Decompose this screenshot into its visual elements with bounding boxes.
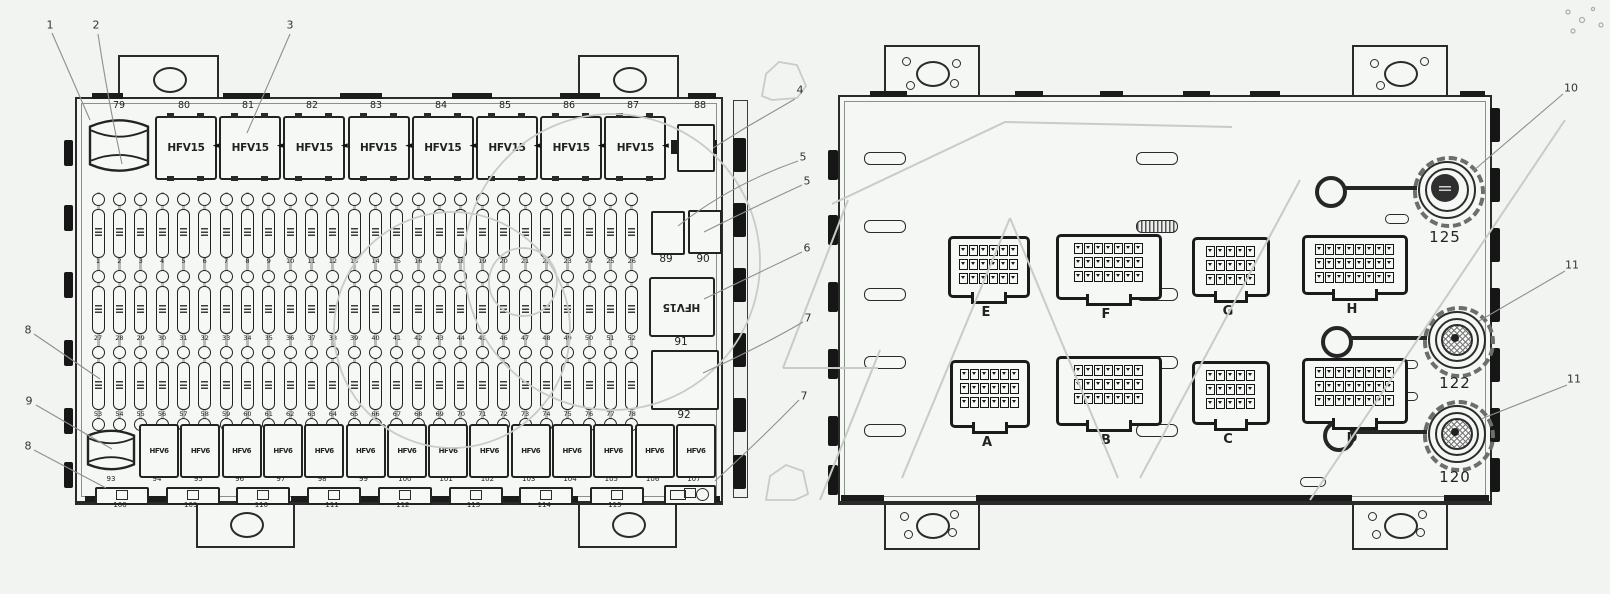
fuse-57 — [177, 362, 190, 410]
pin — [1000, 397, 1009, 408]
bracket-left-bottom-2 — [578, 499, 677, 548]
fuse-terminal — [433, 193, 446, 206]
pin — [1345, 395, 1354, 406]
fuse-position-number: 24 — [585, 257, 593, 265]
relay-hfv6-104: HFV6 — [552, 424, 592, 478]
panel-edge-dash — [870, 91, 907, 97]
fuse-37 — [305, 286, 318, 334]
pin — [1385, 272, 1394, 283]
bracket-right-bottom-2 — [1352, 500, 1448, 550]
pin — [1315, 272, 1324, 283]
pin — [1246, 370, 1255, 381]
mounting-hole — [612, 512, 646, 538]
relay-number: 94 — [153, 475, 162, 483]
pin — [1236, 274, 1245, 285]
bracket-left-bottom-1 — [196, 499, 295, 548]
fuse-terminal — [476, 193, 489, 206]
pin — [959, 273, 968, 284]
relay-tab — [488, 113, 495, 118]
fuse-terminal — [348, 270, 361, 283]
pin — [1124, 271, 1133, 282]
arrow-icon: ◄ — [598, 141, 605, 151]
fuse-terminal — [284, 270, 297, 283]
fuse-78 — [625, 362, 638, 410]
panel-edge-dash — [1460, 91, 1485, 97]
pin — [1084, 379, 1093, 390]
pin — [1375, 258, 1384, 269]
pin — [979, 259, 988, 270]
small-hole — [1372, 530, 1381, 539]
fuse-33 — [220, 286, 233, 334]
relay-position-number: 81 — [242, 100, 254, 111]
callout-3-2: 3 — [287, 19, 294, 32]
fuse-16 — [412, 209, 425, 258]
fuse-terminal — [625, 193, 638, 206]
slot-number: 113 — [467, 501, 480, 509]
pin — [1000, 369, 1009, 380]
fuse-terminal — [156, 270, 169, 283]
pin — [1124, 393, 1133, 404]
pin — [1375, 381, 1384, 392]
pin — [1325, 395, 1334, 406]
pin — [1206, 274, 1215, 285]
pin — [1375, 367, 1384, 378]
fuse-position-number: 25 — [606, 257, 614, 265]
fuse-position-number: 21 — [521, 257, 529, 265]
fuse-terminal — [198, 270, 211, 283]
fuse-position-number: 14 — [371, 257, 379, 265]
pin — [1355, 244, 1364, 255]
fuse-position-number: 1 — [96, 257, 100, 265]
relay-position-number: 83 — [370, 100, 382, 111]
relay-position-number: 86 — [563, 100, 575, 111]
fuse-terminal — [198, 193, 211, 206]
fuse-1 — [92, 209, 105, 258]
slot-pill — [864, 356, 906, 369]
fuse-terminal — [561, 270, 574, 283]
pin — [1206, 260, 1215, 271]
fuse-32 — [198, 286, 211, 334]
pin — [1335, 272, 1344, 283]
left-panel-right-tab — [733, 138, 746, 172]
fuse-terminal — [604, 193, 617, 206]
fuse-terminal — [92, 346, 105, 359]
pin — [1236, 398, 1245, 409]
pin — [999, 273, 1008, 284]
left-panel-right-tab — [733, 203, 746, 237]
fuse-position-number: 23 — [564, 257, 572, 265]
panel-edge-dash — [92, 93, 123, 99]
fuse-terminal — [220, 346, 233, 359]
connector-label-D: D — [1347, 431, 1358, 446]
round-connector-core-125 — [1431, 174, 1459, 202]
fuse-63 — [305, 362, 318, 410]
pin — [1226, 398, 1235, 409]
connector-label-B: B — [1101, 433, 1111, 448]
connector-pins-H — [1315, 244, 1392, 283]
pin — [1074, 379, 1083, 390]
fuse-position-number: 71 — [478, 410, 486, 418]
relay-position-number: 82 — [306, 100, 318, 111]
fuse-position-number: 12 — [329, 257, 337, 265]
fuse-62 — [284, 362, 297, 410]
left-panel-left-tab — [64, 140, 73, 166]
pin — [1206, 384, 1215, 395]
fuse-terminal — [583, 270, 596, 283]
fuse-terminal — [113, 270, 126, 283]
pin — [960, 383, 969, 394]
electrical-box-diagram: 79808182838485868788HFV15HFV15HFV15HFV15… — [0, 0, 1610, 594]
right-panel-right-tab — [1490, 108, 1500, 142]
relay-number: 96 — [235, 475, 244, 483]
fuse-terminal — [305, 346, 318, 359]
pin — [1074, 257, 1083, 268]
relay-tab — [424, 113, 431, 118]
fuse-28 — [113, 286, 126, 334]
pin — [1084, 365, 1093, 376]
fuse-position-number: 4 — [160, 257, 164, 265]
relay-hfv15-83: HFV15 — [348, 116, 410, 180]
relay-hfv15-85: HFV15 — [476, 116, 538, 180]
fuse-position-number: 48 — [542, 334, 550, 342]
pin — [980, 369, 989, 380]
connector-pins-F — [1074, 243, 1141, 282]
fuse-71 — [476, 362, 489, 410]
flasher-relay-79 — [88, 114, 150, 177]
relay-position-number: 87 — [627, 100, 639, 111]
connector-notch — [971, 292, 1007, 304]
callout-6-6: 6 — [804, 242, 811, 255]
hfv6-label: HFV6 — [273, 447, 292, 455]
fuse-position-number: 56 — [158, 410, 166, 418]
fuse-terminal — [604, 346, 617, 359]
pin — [970, 383, 979, 394]
fuse-position-number: 27 — [94, 334, 102, 342]
pin — [1315, 367, 1324, 378]
fuse-65 — [348, 362, 361, 410]
pin — [990, 369, 999, 380]
fuse-terminal — [156, 346, 169, 359]
pin — [1226, 274, 1235, 285]
fuse-terminal — [433, 270, 446, 283]
pin — [1236, 246, 1245, 257]
connector-pins-C — [1206, 370, 1253, 409]
pin — [1216, 274, 1225, 285]
right-panel-left-tab — [828, 150, 838, 180]
relay-hfv6-106: HFV6 — [635, 424, 675, 478]
fuse-23 — [561, 209, 574, 258]
fuse-terminal — [540, 193, 553, 206]
fuse-terminal — [262, 193, 275, 206]
fuse-7 — [220, 209, 233, 258]
fuse-position-number: 40 — [371, 334, 379, 342]
pin — [1375, 395, 1384, 406]
pin — [1315, 258, 1324, 269]
right-panel-left-tab — [828, 282, 838, 312]
fuse-position-number: 8 — [245, 257, 249, 265]
fuse-position-number: 20 — [500, 257, 508, 265]
pin — [960, 397, 969, 408]
pin — [1345, 258, 1354, 269]
test-lead-rod — [1347, 430, 1427, 434]
fuse-terminal — [476, 270, 489, 283]
fuse-position-number: 65 — [350, 410, 358, 418]
left-panel-right-tab — [733, 268, 746, 302]
hfv6-label: HFV6 — [232, 447, 251, 455]
relay-tab — [167, 113, 174, 118]
fuse-position-number: 19 — [478, 257, 486, 265]
left-panel-left-tab — [64, 408, 73, 434]
hfv6-label: HFV6 — [521, 447, 540, 455]
fuse-42 — [412, 286, 425, 334]
fuse-73 — [519, 362, 532, 410]
callout-leader-line — [713, 99, 795, 148]
fuse-22 — [540, 209, 553, 258]
relay-number: 107 — [687, 475, 700, 483]
fuse-19 — [476, 209, 489, 258]
relay-hfv6-102: HFV6 — [469, 424, 509, 478]
fuse-holder-89 — [651, 211, 685, 255]
hfv6-label: HFV6 — [150, 447, 169, 455]
mounting-hole — [613, 67, 647, 93]
pin — [1236, 370, 1245, 381]
relay-hfv15-82: HFV15 — [283, 116, 345, 180]
fuse-terminal — [390, 193, 403, 206]
hfv6-label: HFV6 — [645, 447, 664, 455]
test-lead-rod — [1345, 336, 1427, 340]
slot-pill-small — [1300, 477, 1326, 487]
panel-edge-dash — [688, 93, 716, 99]
fuse-position-number: 66 — [371, 410, 379, 418]
pin — [1000, 383, 1009, 394]
relay-hfv6-99: HFV6 — [346, 424, 386, 478]
slot-number: 110 — [255, 501, 268, 509]
fuse-terminal — [625, 346, 638, 359]
fuse-position-number: 49 — [564, 334, 572, 342]
fuse-position-number: 63 — [307, 410, 315, 418]
pin — [1074, 393, 1083, 404]
connector-pins-B — [1074, 365, 1141, 404]
fuse-77 — [604, 362, 617, 410]
pin — [1335, 367, 1344, 378]
pin — [980, 397, 989, 408]
pin — [1355, 381, 1364, 392]
small-hole — [1420, 57, 1429, 66]
connector-notch — [1086, 420, 1132, 432]
hfv6-label: HFV6 — [439, 447, 458, 455]
fuse-55 — [134, 362, 147, 410]
connector-notch — [1086, 294, 1132, 306]
pin — [1345, 244, 1354, 255]
pin — [1385, 381, 1394, 392]
pin — [1104, 365, 1113, 376]
relay-tab — [325, 113, 332, 118]
pin — [1365, 395, 1374, 406]
fuse-position-number: 45 — [478, 334, 486, 342]
callout-11-13: 11 — [1565, 259, 1579, 272]
fuse-terminal — [326, 346, 339, 359]
fuse-terminal — [390, 346, 403, 359]
round-connector-label-120: 120 — [1439, 468, 1471, 486]
fuse-position-number: 54 — [115, 410, 123, 418]
fuse-64 — [326, 362, 339, 410]
fuse-56 — [156, 362, 169, 410]
pin — [1236, 260, 1245, 271]
fuse-53 — [92, 362, 105, 410]
pin — [1216, 370, 1225, 381]
fuse-position-number: 53 — [94, 410, 102, 418]
pin — [1325, 272, 1334, 283]
bracket-right-bottom-1 — [884, 500, 980, 550]
fuse-position-number: 64 — [329, 410, 337, 418]
relay-hfv15-84: HFV15 — [412, 116, 474, 180]
callout-4-3: 4 — [797, 84, 804, 97]
fuse-34 — [241, 286, 254, 334]
relay-number: 101 — [439, 475, 452, 483]
pin — [1206, 370, 1215, 381]
fuse-terminal — [326, 193, 339, 206]
fuse-11 — [305, 209, 318, 258]
fuse-terminal — [348, 346, 361, 359]
fuse-terminal — [433, 346, 446, 359]
hfv6-label: HFV6 — [480, 447, 499, 455]
pin — [1074, 365, 1083, 376]
pin — [1009, 245, 1018, 256]
fuse-45 — [476, 286, 489, 334]
fuse-2 — [113, 209, 126, 258]
fuse-67 — [390, 362, 403, 410]
fuse-terminal — [412, 193, 425, 206]
relay-hfv6-98: HFV6 — [304, 424, 344, 478]
hfv6-label: HFV6 — [356, 447, 375, 455]
fuse-terminal — [454, 346, 467, 359]
fuse-position-number: 26 — [628, 257, 636, 265]
test-lead-rod — [1339, 186, 1417, 190]
fuse-3 — [134, 209, 147, 258]
fuse-terminal — [390, 270, 403, 283]
fuse-50 — [583, 286, 596, 334]
fuse-position-number: 31 — [179, 334, 187, 342]
right-panel-left-tab — [828, 215, 838, 245]
small-hole — [1370, 59, 1379, 68]
pin — [1365, 381, 1374, 392]
fuse-holder-90 — [688, 210, 722, 254]
pin — [1375, 272, 1384, 283]
relay-number: 97 — [276, 475, 285, 483]
panel-edge-dash — [841, 495, 884, 501]
relay-hfv15-86: HFV15 — [540, 116, 602, 180]
connector-pins-G — [1206, 246, 1253, 285]
fuse-position-number: 41 — [393, 334, 401, 342]
blank-box-92 — [651, 350, 719, 410]
pin — [1094, 393, 1103, 404]
pin — [1335, 244, 1344, 255]
right-panel-right-tab — [1490, 458, 1500, 492]
fuse-60 — [241, 362, 254, 410]
callout-2-1: 2 — [93, 19, 100, 32]
relay-tab — [552, 113, 559, 118]
relay-number: 103 — [522, 475, 535, 483]
panel-edge-dash — [1250, 91, 1280, 97]
pin — [1365, 244, 1374, 255]
fuse-terminal — [519, 270, 532, 283]
pin — [1074, 271, 1083, 282]
pin — [990, 397, 999, 408]
fuse-terminal — [241, 346, 254, 359]
panel-edge-dash — [976, 495, 1352, 501]
pin — [1094, 243, 1103, 254]
pin — [1084, 271, 1093, 282]
fuse-29 — [134, 286, 147, 334]
arrow-icon: ◄ — [469, 141, 476, 151]
hfv6-label: HFV6 — [315, 447, 334, 455]
pin — [1216, 384, 1225, 395]
fuse-27 — [92, 286, 105, 334]
relay-88 — [677, 124, 715, 172]
right-panel-right-tab — [1490, 288, 1500, 322]
pin — [1010, 383, 1019, 394]
mounting-hole — [1384, 61, 1418, 87]
fuse-terminal — [583, 346, 596, 359]
pin — [1355, 367, 1364, 378]
pin — [1226, 370, 1235, 381]
relay-tab — [646, 113, 653, 118]
fuse-21 — [519, 209, 532, 258]
fuse-terminal — [625, 270, 638, 283]
relay-tab — [261, 113, 268, 118]
label-89: 89 — [659, 253, 672, 265]
pin — [1315, 244, 1324, 255]
fuse-terminal — [369, 193, 382, 206]
fuse-54 — [113, 362, 126, 410]
fuse-position-number: 50 — [585, 334, 593, 342]
relay-hfv6-103: HFV6 — [511, 424, 551, 478]
arrow-icon: ◄ — [341, 141, 348, 151]
element-inner-rect — [670, 490, 686, 500]
callout-7-7: 7 — [805, 312, 812, 325]
pin — [1355, 258, 1364, 269]
pin — [1134, 243, 1143, 254]
element-circle — [696, 488, 709, 501]
slot-pill — [864, 288, 906, 301]
pin — [1246, 274, 1255, 285]
slot-number: 111 — [325, 501, 338, 509]
fuse-terminal — [540, 346, 553, 359]
pin — [1114, 393, 1123, 404]
fuse-9 — [262, 209, 275, 258]
arrow-icon: ◄ — [213, 141, 220, 151]
connector-label-A: A — [982, 435, 992, 450]
relay-hfv15-91: HFV15 — [649, 277, 715, 337]
fuse-position-number: 29 — [137, 334, 145, 342]
left-panel-left-tab — [64, 205, 73, 231]
fuse-terminal — [156, 193, 169, 206]
pin — [1104, 243, 1113, 254]
relay-number: 100 — [398, 475, 411, 483]
pin — [1335, 258, 1344, 269]
relay-number: 98 — [318, 475, 327, 483]
fuse-position-number: 72 — [500, 410, 508, 418]
right-panel-left-tab — [828, 349, 838, 379]
fuse-terminal — [262, 346, 275, 359]
fuse-position-number: 3 — [139, 257, 143, 265]
pin — [1345, 367, 1354, 378]
fuse-position-number: 7 — [224, 257, 228, 265]
fuse-position-number: 62 — [286, 410, 294, 418]
left-panel-left-tab — [64, 272, 73, 298]
connector-label-F: F — [1102, 307, 1111, 322]
relay-91-label: HFV15 — [663, 301, 700, 313]
